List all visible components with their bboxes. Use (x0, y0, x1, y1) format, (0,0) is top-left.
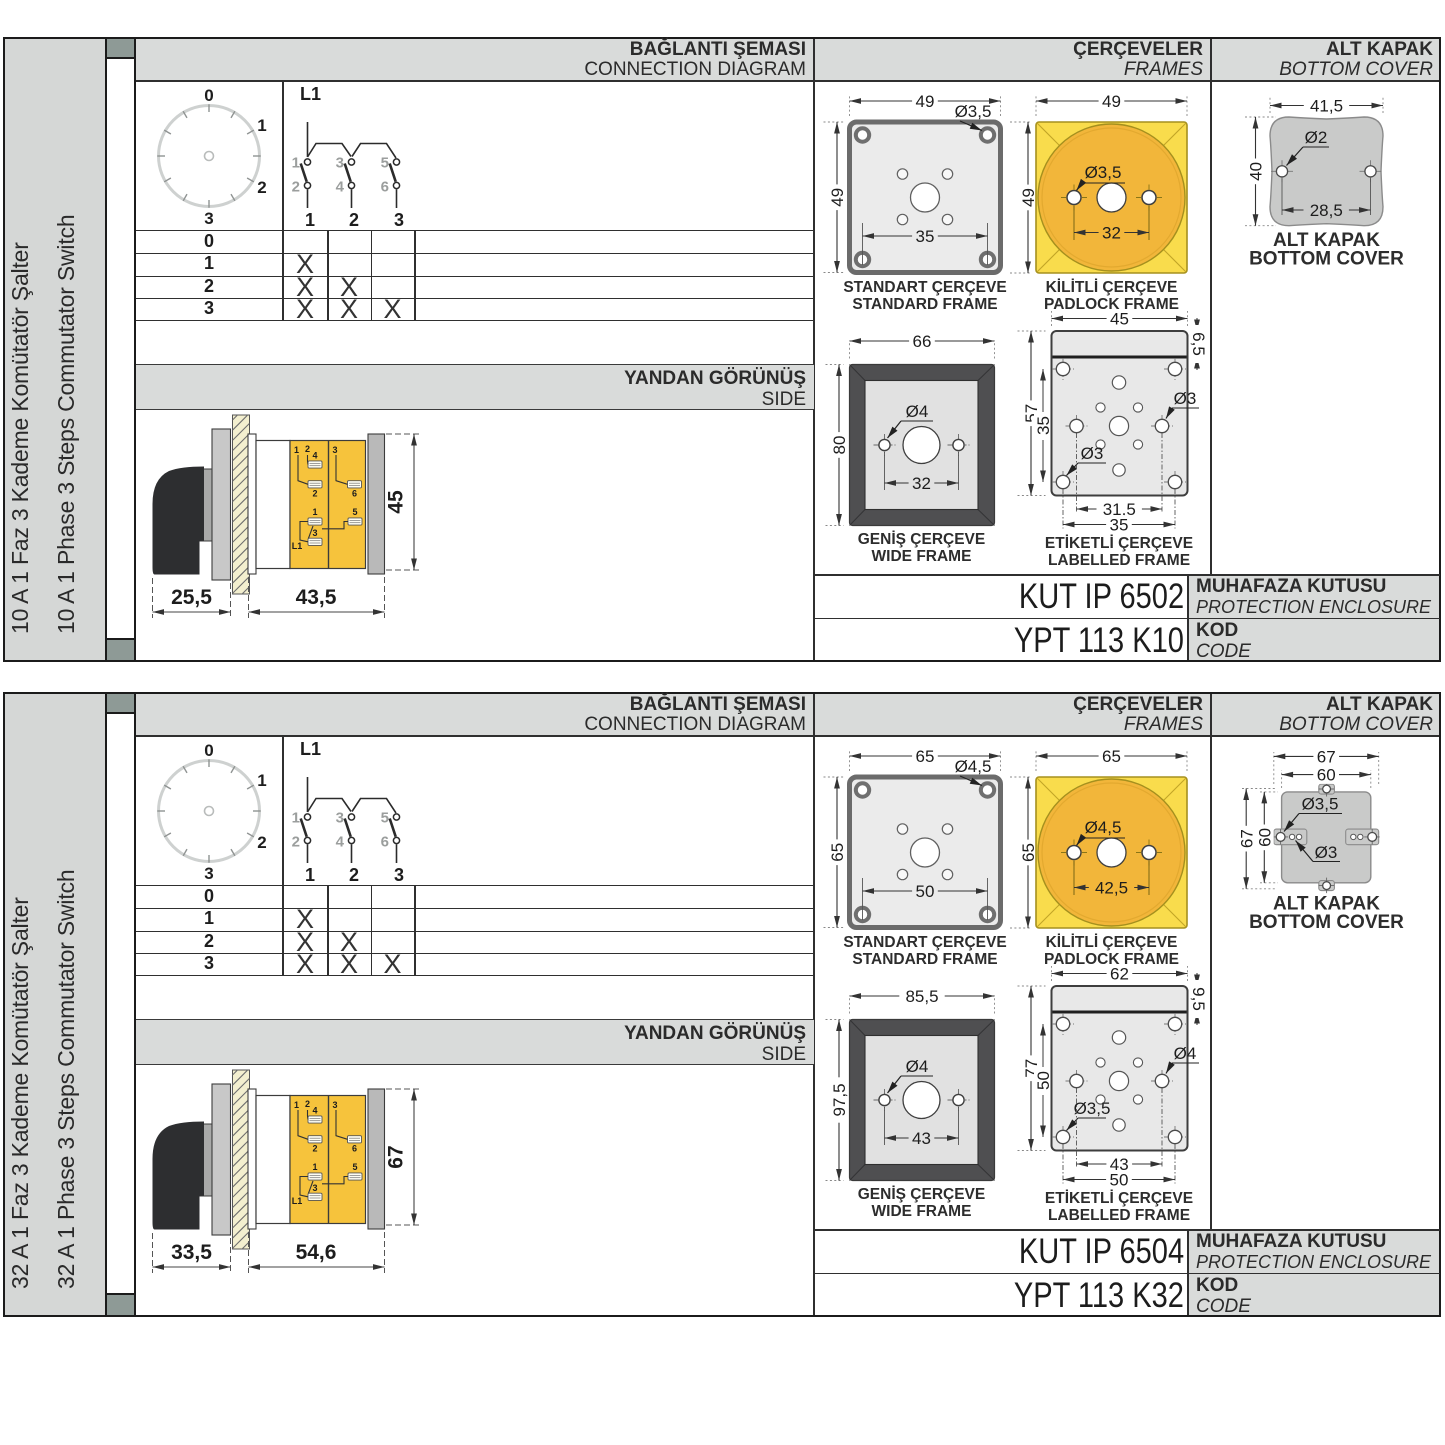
svg-text:45: 45 (1110, 310, 1129, 329)
svg-text:Ø4,5: Ø4,5 (955, 757, 992, 776)
svg-text:4: 4 (312, 451, 317, 461)
svg-text:66: 66 (913, 332, 932, 351)
svg-text:Ø3,5: Ø3,5 (955, 102, 992, 121)
svg-text:6: 6 (381, 834, 389, 851)
svg-text:2: 2 (312, 1144, 317, 1154)
svg-text:2: 2 (257, 833, 266, 852)
svg-text:67: 67 (385, 1145, 408, 1168)
svg-text:1: 1 (292, 155, 300, 172)
svg-text:GENİŞ ÇERÇEVE: GENİŞ ÇERÇEVE (858, 1186, 985, 1203)
svg-text:Ø3: Ø3 (1174, 389, 1197, 408)
svg-text:50: 50 (916, 882, 935, 901)
svg-text:54,6: 54,6 (296, 1241, 337, 1264)
svg-text:1: 1 (294, 445, 299, 455)
svg-text:6: 6 (381, 179, 389, 196)
svg-text:4: 4 (336, 179, 345, 196)
svg-text:3: 3 (394, 865, 404, 885)
svg-text:2: 2 (305, 444, 310, 454)
svg-text:60: 60 (1255, 828, 1274, 847)
svg-text:WIDE FRAME: WIDE FRAME (872, 548, 972, 565)
svg-text:BOTTOM COVER: BOTTOM COVER (1249, 912, 1404, 933)
svg-text:50: 50 (1034, 1071, 1053, 1090)
svg-text:L1: L1 (292, 541, 303, 551)
svg-text:2: 2 (257, 178, 266, 197)
svg-text:Ø2: Ø2 (1305, 128, 1328, 147)
svg-text:Ø3: Ø3 (1315, 843, 1338, 862)
svg-text:GENİŞ ÇERÇEVE: GENİŞ ÇERÇEVE (858, 531, 985, 548)
svg-text:80: 80 (830, 436, 849, 455)
svg-text:6: 6 (352, 489, 357, 499)
svg-text:28,5: 28,5 (1310, 201, 1343, 220)
svg-text:49: 49 (1102, 92, 1121, 111)
svg-text:2: 2 (305, 1099, 310, 1109)
svg-text:3: 3 (336, 810, 344, 827)
svg-text:6,5: 6,5 (1189, 332, 1208, 356)
svg-text:97,5: 97,5 (830, 1083, 849, 1116)
svg-text:50: 50 (1110, 1171, 1129, 1190)
svg-text:KİLİTLİ ÇERÇEVE: KİLİTLİ ÇERÇEVE (1046, 934, 1178, 951)
svg-text:0: 0 (204, 86, 213, 105)
svg-text:2: 2 (312, 489, 317, 499)
svg-text:1: 1 (312, 507, 317, 517)
svg-text:1: 1 (257, 771, 266, 790)
svg-text:41,5: 41,5 (1310, 97, 1343, 116)
svg-text:2: 2 (292, 179, 300, 196)
svg-text:LABELLED FRAME: LABELLED FRAME (1048, 552, 1190, 569)
svg-text:9,5: 9,5 (1189, 987, 1208, 1011)
svg-text:Ø3,5: Ø3,5 (1302, 795, 1339, 814)
svg-text:BOTTOM COVER: BOTTOM COVER (1249, 249, 1404, 270)
svg-text:35: 35 (1110, 516, 1129, 535)
svg-text:49: 49 (828, 188, 847, 207)
svg-text:4: 4 (336, 834, 345, 851)
svg-text:1: 1 (312, 1162, 317, 1172)
svg-text:32: 32 (1102, 224, 1121, 243)
svg-text:Ø3: Ø3 (1081, 444, 1104, 463)
svg-text:2: 2 (292, 834, 300, 851)
svg-text:85,5: 85,5 (905, 987, 938, 1006)
svg-text:33,5: 33,5 (171, 1241, 212, 1264)
svg-text:32: 32 (912, 474, 931, 493)
svg-text:Ø4: Ø4 (1174, 1044, 1197, 1063)
svg-text:62: 62 (1110, 965, 1129, 984)
svg-text:STANDART ÇERÇEVE: STANDART ÇERÇEVE (843, 934, 1006, 951)
svg-text:35: 35 (1034, 416, 1053, 435)
svg-text:LABELLED FRAME: LABELLED FRAME (1048, 1207, 1190, 1224)
svg-text:4: 4 (312, 1106, 317, 1116)
svg-text:KİLİTLİ ÇERÇEVE: KİLİTLİ ÇERÇEVE (1046, 279, 1178, 296)
svg-text:L1: L1 (300, 84, 321, 104)
svg-text:Ø3,5: Ø3,5 (1085, 163, 1122, 182)
svg-text:49: 49 (916, 92, 935, 111)
svg-text:3: 3 (204, 209, 213, 228)
svg-text:5: 5 (352, 1162, 357, 1172)
svg-text:5: 5 (381, 810, 389, 827)
svg-text:65: 65 (1102, 747, 1121, 766)
svg-text:1: 1 (292, 810, 300, 827)
svg-text:40: 40 (1247, 162, 1266, 181)
svg-text:25,5: 25,5 (171, 586, 212, 609)
svg-text:STANDARD FRAME: STANDARD FRAME (852, 296, 997, 313)
svg-text:43,5: 43,5 (296, 586, 337, 609)
svg-text:1: 1 (305, 865, 315, 885)
svg-text:WIDE FRAME: WIDE FRAME (872, 1203, 972, 1220)
svg-text:Ø4: Ø4 (906, 1057, 929, 1076)
svg-text:Ø4,5: Ø4,5 (1085, 818, 1122, 837)
svg-text:L1: L1 (292, 1196, 303, 1206)
svg-text:42,5: 42,5 (1095, 879, 1128, 898)
svg-text:STANDART ÇERÇEVE: STANDART ÇERÇEVE (843, 279, 1006, 296)
svg-text:3: 3 (332, 445, 337, 455)
svg-text:3: 3 (332, 1100, 337, 1110)
svg-text:35: 35 (916, 227, 935, 246)
svg-text:Ø3,5: Ø3,5 (1074, 1099, 1111, 1118)
svg-text:1: 1 (294, 1100, 299, 1110)
svg-text:67: 67 (1317, 748, 1336, 767)
svg-text:67: 67 (1237, 829, 1256, 848)
svg-text:L1: L1 (300, 739, 321, 759)
svg-text:0: 0 (204, 741, 213, 760)
svg-text:5: 5 (381, 155, 389, 172)
svg-text:ETİKETLİ ÇERÇEVE: ETİKETLİ ÇERÇEVE (1045, 535, 1193, 552)
svg-text:65: 65 (916, 747, 935, 766)
svg-text:3: 3 (312, 1183, 317, 1193)
svg-text:2: 2 (349, 210, 359, 230)
svg-text:1: 1 (257, 116, 266, 135)
svg-text:3: 3 (312, 528, 317, 538)
svg-text:60: 60 (1317, 766, 1336, 785)
svg-text:Ø4: Ø4 (906, 402, 929, 421)
svg-text:ETİKETLİ ÇERÇEVE: ETİKETLİ ÇERÇEVE (1045, 1190, 1193, 1207)
svg-text:5: 5 (352, 507, 357, 517)
svg-text:6: 6 (352, 1144, 357, 1154)
svg-text:3: 3 (204, 864, 213, 883)
svg-text:43: 43 (912, 1129, 931, 1148)
svg-text:65: 65 (828, 843, 847, 862)
svg-text:3: 3 (336, 155, 344, 172)
svg-text:3: 3 (394, 210, 404, 230)
svg-text:STANDARD FRAME: STANDARD FRAME (852, 951, 997, 968)
svg-text:45: 45 (385, 490, 408, 514)
svg-text:2: 2 (349, 865, 359, 885)
svg-text:1: 1 (305, 210, 315, 230)
